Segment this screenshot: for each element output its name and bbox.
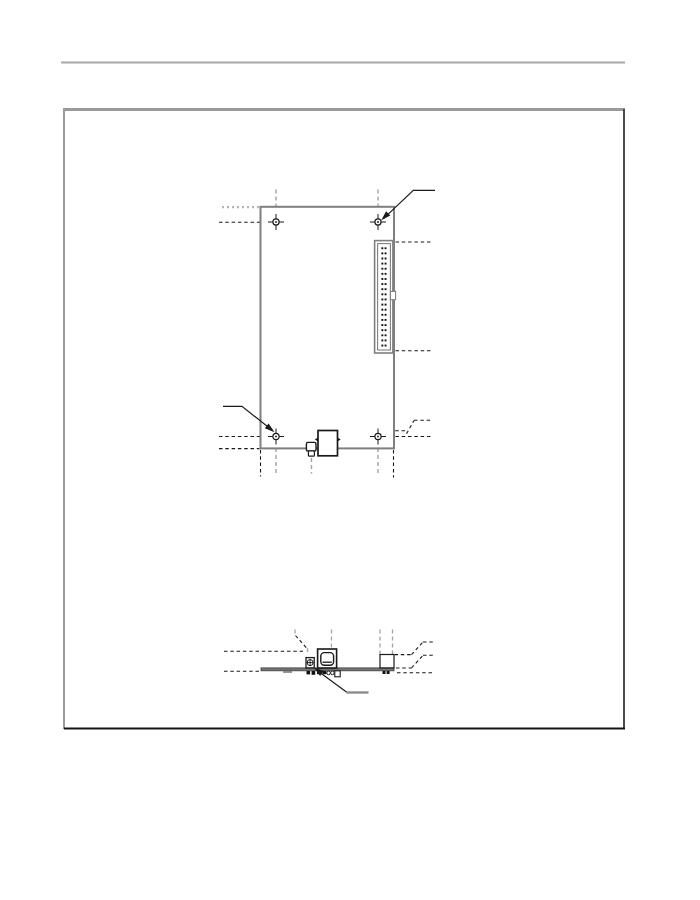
connector-pin: [385, 278, 387, 280]
connector-pin: [381, 258, 383, 260]
sv-component-large: [318, 649, 337, 668]
connector-pin: [385, 339, 387, 341]
sv-leader: [314, 668, 369, 694]
pin: [383, 671, 386, 674]
connector-pin: [385, 304, 387, 306]
connector-pin: [381, 263, 383, 265]
connector-pin: [381, 283, 383, 285]
pin: [307, 671, 311, 674]
frame-top: [63, 108, 625, 111]
connector-pin: [381, 288, 383, 290]
connector-inner: [378, 244, 391, 350]
connector-pin: [381, 252, 383, 254]
connector-pin: [385, 329, 387, 331]
pin: [312, 671, 316, 675]
connector-pin: [381, 345, 383, 347]
board-top-view: [219, 190, 435, 478]
pin: [387, 671, 390, 674]
connector-pin: [385, 263, 387, 265]
connector-pin: [385, 283, 387, 285]
sv-jog-diagonal-left: [296, 636, 308, 650]
edge-connector: [375, 241, 396, 353]
connector-pin: [381, 319, 383, 321]
connector-pin: [385, 319, 387, 321]
bottom-component-large: [315, 431, 341, 456]
connector-pin: [385, 273, 387, 275]
frame-left: [63, 108, 65, 729]
connector-pin: [381, 324, 383, 326]
jog-diagonal-bottom-right: [407, 421, 415, 434]
sv-underside-pins: [283, 671, 390, 677]
board-side-view: [224, 630, 434, 694]
connector-pin: [381, 334, 383, 336]
leader-label-bar: [347, 691, 369, 693]
connector-pin: [381, 247, 383, 249]
connector-pin: [381, 273, 383, 275]
sv-connector-profile: [380, 655, 394, 668]
connector-pin: [385, 252, 387, 254]
leader-top-right: [381, 190, 435, 220]
header-rule: [61, 62, 625, 64]
connector-pin: [385, 288, 387, 290]
connector-pin: [385, 324, 387, 326]
connector-pin: [381, 339, 383, 341]
connector-pin: [385, 258, 387, 260]
connector-pin: [381, 268, 383, 270]
connector-pin: [385, 268, 387, 270]
connector-pin: [385, 309, 387, 311]
connector-pin: [381, 299, 383, 301]
connector-pin: [385, 334, 387, 336]
connector-pin: [381, 329, 383, 331]
connector-pin: [385, 247, 387, 249]
figure-canvas: [0, 0, 700, 900]
pin-circle: [327, 671, 331, 675]
connector-pin: [381, 309, 383, 311]
pad-gray: [283, 671, 292, 673]
connector-pin: [381, 314, 383, 316]
document-page: [0, 0, 700, 900]
sv-screw-head: [306, 658, 314, 668]
pin-circle: [331, 671, 335, 675]
connector-pin: [385, 314, 387, 316]
connector-pin: [385, 299, 387, 301]
frame-bottom: [64, 728, 625, 730]
connector-pin: [381, 293, 383, 295]
sv-jog-line-lower-right: [396, 655, 434, 668]
connector-pin: [381, 278, 383, 280]
connector-pin: [385, 345, 387, 347]
connector-key-tab: [390, 291, 395, 299]
pin-square: [335, 671, 340, 677]
sv-jog-line-upper-right: [395, 642, 435, 655]
bottom-component-small: [306, 442, 316, 456]
connector-pin: [381, 304, 383, 306]
frame-right: [623, 109, 625, 729]
connector-pin: [385, 293, 387, 295]
